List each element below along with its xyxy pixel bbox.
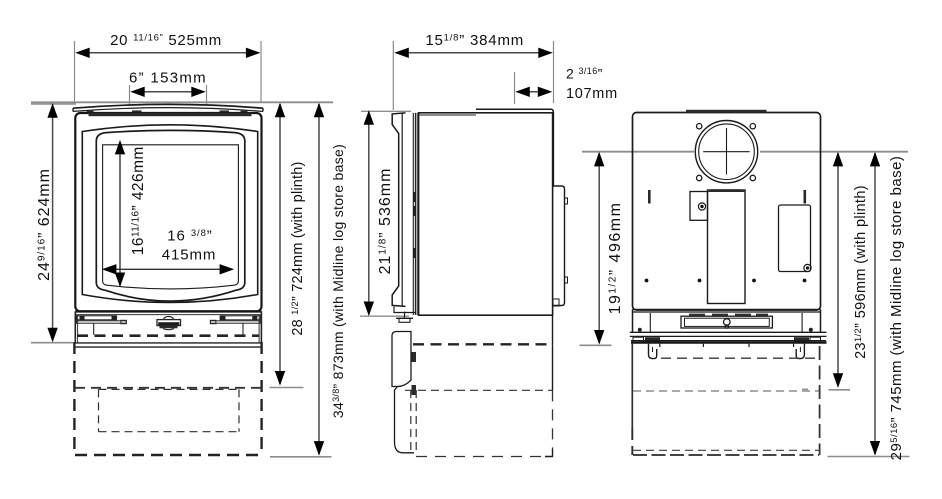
- svg-text:1611/16” 426mm: 1611/16” 426mm: [130, 146, 147, 255]
- svg-text:295/16” 745mm (with Midline lo: 295/16” 745mm (with Midline log store ba…: [888, 156, 905, 461]
- svg-text:151/8” 384mm: 151/8” 384mm: [425, 32, 524, 49]
- svg-text:191/2” 496mm: 191/2” 496mm: [607, 202, 624, 315]
- svg-text:16 3/8”: 16 3/8”: [167, 228, 212, 245]
- svg-text:107mm: 107mm: [566, 86, 618, 102]
- svg-text:6” 153mm: 6” 153mm: [129, 70, 207, 87]
- svg-text:249/16” 624mm: 249/16” 624mm: [36, 168, 53, 281]
- svg-text:343/8” 873mm (with Midline log: 343/8” 873mm (with Midline log store bas…: [330, 144, 346, 418]
- svg-text:415mm: 415mm: [162, 247, 217, 264]
- svg-text:211/8” 536mm: 211/8” 536mm: [377, 168, 394, 275]
- svg-text:20 11/16” 525mm: 20 11/16” 525mm: [110, 32, 222, 49]
